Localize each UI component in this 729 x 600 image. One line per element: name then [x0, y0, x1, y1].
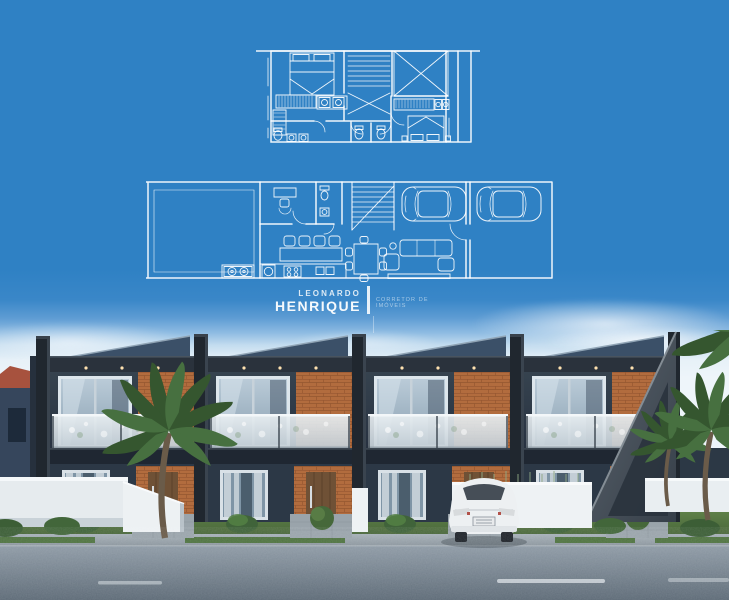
floorplan-upper: [256, 38, 480, 166]
bed-master: [290, 53, 334, 95]
laundry-machine: [262, 265, 275, 278]
kitchen-island: [280, 236, 342, 261]
closet-strip: [394, 99, 449, 110]
watermark-last-name: HENRIQUE: [275, 298, 361, 314]
floorplan-ground: [146, 178, 558, 284]
car-top-view-2: [477, 187, 541, 221]
right-fence-wall: [645, 478, 729, 512]
bed-second: [402, 116, 451, 142]
wardrobe-hangers: [273, 95, 316, 135]
sofa-set: [384, 240, 454, 279]
asphalt-grain: [0, 534, 729, 600]
void-cross: [394, 51, 448, 96]
yard-boundary: [154, 190, 254, 272]
watermark: LEONARDO HENRIQUE CORRETOR DE IMÓVEIS: [0, 286, 729, 332]
watermark-name: LEONARDO HENRIQUE: [275, 286, 361, 314]
watermark-first-name: LEONARDO: [275, 289, 361, 298]
watermark-divider-bar: [367, 286, 370, 314]
dining-table: [346, 237, 387, 282]
bathroom-ground: [320, 186, 329, 216]
car-top-view-1: [402, 187, 466, 221]
staircase-ground: [352, 182, 394, 230]
toilets-center: [355, 126, 385, 139]
render-scene: [0, 330, 729, 600]
barbecue-counter: [222, 265, 254, 278]
vanity-double-sink: [317, 96, 347, 109]
staircase-upper: [348, 56, 390, 114]
office-desk: [274, 188, 296, 214]
poster-canvas: LEONARDO HENRIQUE CORRETOR DE IMÓVEIS: [0, 0, 729, 600]
white-pillar: [352, 488, 368, 532]
watermark-tagline: CORRETOR DE IMÓVEIS: [376, 286, 454, 309]
